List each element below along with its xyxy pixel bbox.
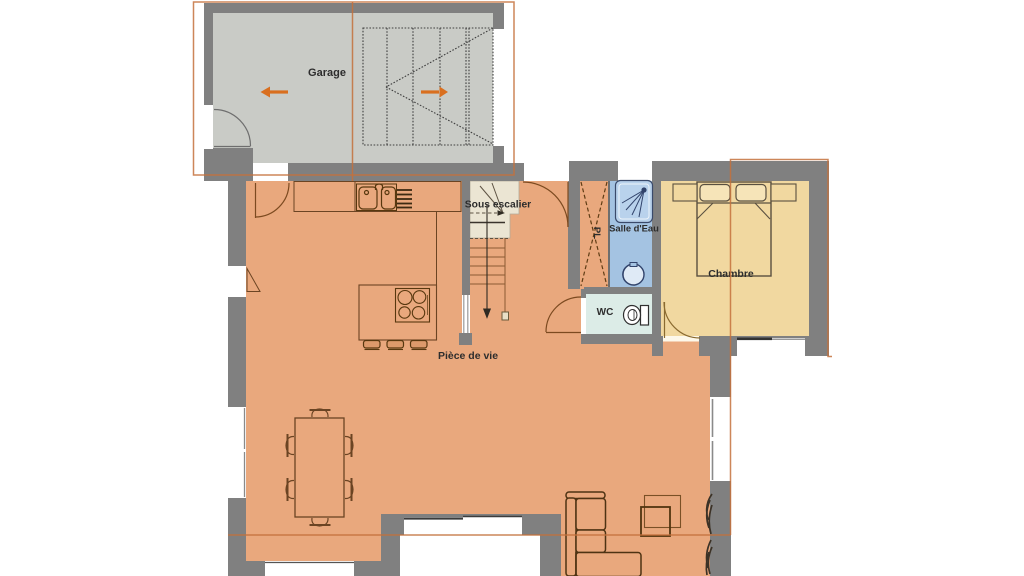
svg-text:Sous escalier: Sous escalier (465, 200, 531, 211)
svg-text:PL: PL (591, 227, 602, 239)
svg-text:Pièce de vie: Pièce de vie (438, 350, 498, 362)
svg-text:Salle d'Eau: Salle d'Eau (609, 223, 659, 234)
svg-text:Garage: Garage (308, 67, 346, 79)
svg-text:WC: WC (597, 307, 614, 318)
